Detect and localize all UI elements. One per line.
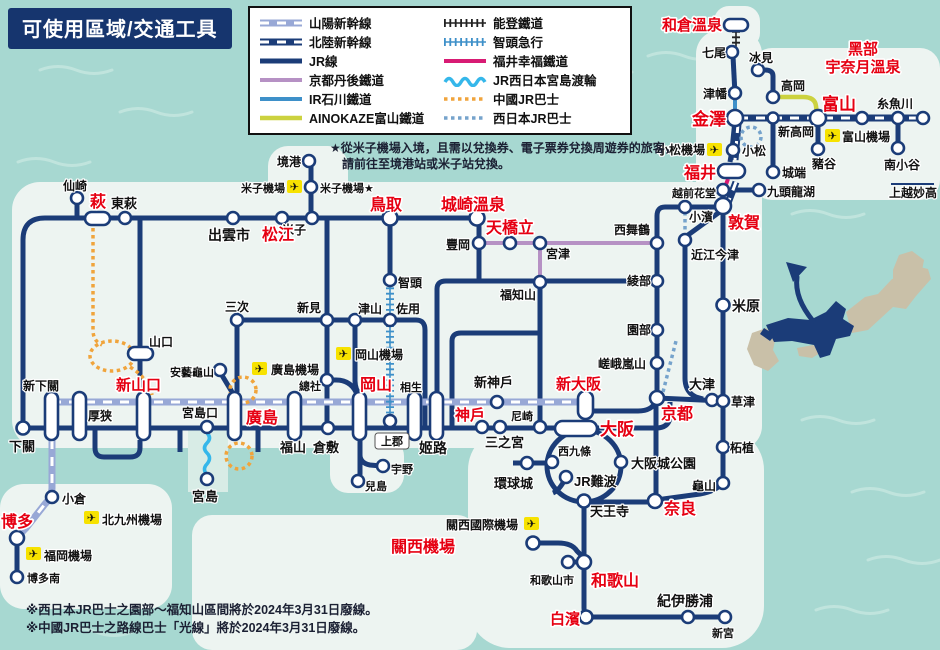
station-園部 xyxy=(651,324,663,336)
label-安藝龜山: 安藝龜山 xyxy=(170,365,214,379)
airport-entry-note: ★從米子機場入境，且需以兌換券、電子票券兌換周遊券的旅客， 請前往至境港站或米子… xyxy=(330,140,690,172)
legend-label: IR石川鐵道 xyxy=(309,89,372,108)
label-新神戶: 新神戶 xyxy=(474,375,513,390)
station-姬路 xyxy=(430,392,443,440)
label-岡山機場: 岡山機場 xyxy=(355,347,403,362)
label-萩: 萩 xyxy=(89,193,106,211)
label-大阪: 大阪 xyxy=(600,419,634,439)
label-上越妙高: 上越妙高 xyxy=(889,185,937,200)
label-九頭龍湖: 九頭龍湖 xyxy=(766,184,815,199)
label-綾部: 綾部 xyxy=(627,273,651,288)
legend-item-buso: 中國JR巴士 xyxy=(442,89,622,108)
label-新大阪: 新大阪 xyxy=(556,375,602,393)
legend-label: 福井幸福鐵道 xyxy=(493,51,568,70)
label-智頭: 智頭 xyxy=(397,275,423,290)
label-龜山: 龜山 xyxy=(692,478,716,493)
station-和倉溫泉 xyxy=(724,19,748,31)
label-姬路: 姬路 xyxy=(419,440,448,456)
label-上郡: 上郡 xyxy=(381,434,403,448)
label-兒島: 兒島 xyxy=(365,479,387,493)
fukuoka-airport-icon: ✈ xyxy=(26,547,41,561)
label-廣島機場: 廣島機場 xyxy=(271,362,319,377)
footnotes: ※西日本JR巴士之園部～福知山區間將於2024年3月31日廢線。※中國JR巴士之… xyxy=(26,601,378,637)
label-奈良: 奈良 xyxy=(663,499,696,518)
label-富山: 富山 xyxy=(822,94,856,114)
station-城端 xyxy=(767,166,779,178)
station-和歌山 xyxy=(577,555,591,569)
label-紀伊勝浦: 紀伊勝浦 xyxy=(657,593,713,609)
label-園部: 園部 xyxy=(627,322,651,337)
label-新下關: 新下關 xyxy=(23,378,59,393)
label-嵯峨嵐山: 嵯峨嵐山 xyxy=(598,356,646,371)
station-龜山 xyxy=(717,477,729,489)
station-出雲市 xyxy=(227,212,239,224)
label-七尾: 七尾 xyxy=(702,46,726,60)
station-下關 xyxy=(17,422,30,435)
label-越前花堂: 越前花堂 xyxy=(671,186,716,200)
station-和歌山市 xyxy=(562,556,574,568)
legend-item-sksh: 北陸新幹線 xyxy=(258,32,438,51)
station-敦賀 xyxy=(715,198,731,214)
station-東萩 xyxy=(119,212,131,224)
yonago-airport-icon: ✈ xyxy=(287,180,302,194)
label-豬谷: 豬谷 xyxy=(811,156,837,171)
label-柘植: 柘植 xyxy=(729,440,754,455)
legend-label: JR線 xyxy=(309,51,337,70)
station-宇野 xyxy=(377,460,389,472)
label-豐岡: 豐岡 xyxy=(446,237,470,252)
kansai-intl-airport-icon: ✈ xyxy=(524,517,539,531)
station-西舞鶴 xyxy=(651,237,663,249)
label-新宮: 新宮 xyxy=(712,626,734,640)
legend-label: 中國JR巴士 xyxy=(493,89,559,108)
label-草津: 草津 xyxy=(731,394,755,409)
station-三之宮 xyxy=(494,421,506,433)
station-七尾 xyxy=(726,46,738,58)
legend-item-noto: 能登鐵道 xyxy=(442,13,622,32)
label-城崎溫泉: 城崎溫泉 xyxy=(441,195,506,214)
station-關西機場 xyxy=(527,537,540,550)
legend-item-aino: AINOKAZE富山鐵道 xyxy=(258,108,438,127)
label-冰見: 冰見 xyxy=(749,50,773,65)
legend-swatch-chizu xyxy=(442,35,488,49)
svg-text:✈: ✈ xyxy=(710,145,719,157)
legend-swatch-busb xyxy=(442,111,488,125)
station-仙崎 xyxy=(71,192,83,204)
label-境港: 境港 xyxy=(277,154,302,169)
label-和歌山: 和歌山 xyxy=(591,571,639,590)
station-小松 xyxy=(727,144,739,156)
label-津山: 津山 xyxy=(358,301,382,316)
label-天王寺: 天王寺 xyxy=(590,504,629,519)
legend-label: AINOKAZE富山鐵道 xyxy=(309,108,424,127)
label-下關: 下關 xyxy=(9,439,35,454)
svg-text:✈: ✈ xyxy=(527,519,536,531)
label-尼崎: 尼崎 xyxy=(511,409,533,423)
station-糸魚川 xyxy=(892,112,904,124)
note-line-1: ★從米子機場入境，且需以兌換券、電子票券兌換周遊券的旅客， xyxy=(330,140,690,156)
label-廣島: 廣島 xyxy=(246,408,278,427)
station-尼崎 xyxy=(534,421,546,433)
station-綾部 xyxy=(651,275,663,287)
station-新宮 xyxy=(719,611,731,623)
label-福岡機場: 福岡機場 xyxy=(43,548,92,563)
station-總社 xyxy=(321,374,333,386)
legend-item-chizu: 智頭急行 xyxy=(442,32,622,51)
station-上郡 xyxy=(384,415,396,427)
legend-swatch-ferry xyxy=(442,73,488,87)
line-kojima-branch xyxy=(358,440,360,479)
label-博多南: 博多南 xyxy=(27,571,60,585)
station-福知山 xyxy=(534,276,546,288)
label-神戶: 神戶 xyxy=(455,406,485,424)
kitakyushu-airport-icon: ✈ xyxy=(84,511,99,525)
station-天王寺 xyxy=(578,495,591,508)
label-鳥取: 鳥取 xyxy=(370,195,402,214)
station-福山 xyxy=(288,392,301,440)
komatsu-airport-icon: ✈ xyxy=(707,143,722,157)
station-豬谷 xyxy=(812,143,824,155)
label-出雲市: 出雲市 xyxy=(208,227,250,243)
label-米子機場★: 米子機場★ xyxy=(319,181,374,195)
label-三之宮: 三之宮 xyxy=(485,435,524,450)
station-倉敷 xyxy=(322,422,334,434)
label-JR難波: JR難波 xyxy=(574,474,618,489)
station-黑部宇奈月溫泉 xyxy=(856,112,868,124)
route-map-stage: 上郡✈✈✈✈✈✈✈✈和倉溫泉七尾冰見津幡高岡新高岡金澤富山黑部宇奈月溫泉糸魚川南… xyxy=(0,0,940,650)
label-高岡: 高岡 xyxy=(781,78,805,93)
station-米原 xyxy=(717,299,730,312)
station-金澤 xyxy=(727,110,743,126)
label-和歌山市: 和歌山市 xyxy=(530,573,574,587)
toyama-airport-icon: ✈ xyxy=(825,129,840,143)
legend-label: 北陸新幹線 xyxy=(309,32,372,51)
label-關西機場: 關西機場 xyxy=(391,537,455,556)
station-米子 xyxy=(306,212,318,224)
station-新見 xyxy=(321,314,333,326)
label-岡山: 岡山 xyxy=(360,376,392,394)
station-新山口 xyxy=(137,392,150,440)
station-宮津 xyxy=(534,237,546,249)
label-佐用: 佐用 xyxy=(395,301,420,316)
station-相生 xyxy=(408,392,421,440)
legend-item-tango: 京都丹後鐵道 xyxy=(258,70,438,89)
label-新見: 新見 xyxy=(297,300,321,315)
okayama-airport-icon: ✈ xyxy=(336,347,351,361)
label-城端: 城端 xyxy=(782,165,806,180)
legend-label: 京都丹後鐵道 xyxy=(309,70,384,89)
label-仙崎: 仙崎 xyxy=(63,178,87,193)
legend-swatch-sksh xyxy=(258,35,304,49)
label-小濱: 小濱 xyxy=(689,209,713,224)
station-米子機場站 xyxy=(305,181,317,193)
label-新山口: 新山口 xyxy=(116,376,161,394)
station-越前花堂 xyxy=(717,184,729,196)
label-北九州機場: 北九州機場 xyxy=(102,512,162,527)
label-相生: 相生 xyxy=(400,380,422,394)
legend-label: 西日本JR巴士 xyxy=(493,108,571,127)
station-新神戶 xyxy=(491,396,503,408)
label-米子機場: 米子機場 xyxy=(240,181,285,195)
label-津幡: 津幡 xyxy=(703,86,728,101)
station-小倉 xyxy=(46,491,58,503)
station-新大阪 xyxy=(578,391,593,419)
label-福知山: 福知山 xyxy=(499,287,536,302)
footnote: ※西日本JR巴士之園部～福知山區間將於2024年3月31日廢線。 xyxy=(26,601,378,619)
footnote: ※中國JR巴士之路線巴士「光線」將於2024年3月31日廢線。 xyxy=(26,619,378,637)
station-博多南 xyxy=(11,571,23,583)
label-關西國際機場: 關西國際機場 xyxy=(446,517,518,532)
label-米原: 米原 xyxy=(732,298,760,314)
legend-column-right: 能登鐵道智頭急行福井幸福鐵道JR西日本宮島渡輪中國JR巴士西日本JR巴士 xyxy=(442,13,622,127)
legend-label: 智頭急行 xyxy=(493,32,543,51)
svg-text:✈: ✈ xyxy=(339,349,348,361)
legend-swatch-tango xyxy=(258,73,304,87)
label-博多: 博多 xyxy=(1,512,33,531)
legend-swatch-ir xyxy=(258,92,304,106)
station-三次 xyxy=(231,314,243,326)
station-西九條 xyxy=(546,456,558,468)
label-金澤: 金澤 xyxy=(691,109,726,129)
station-南小谷 xyxy=(892,142,904,154)
label-富山機場: 富山機場 xyxy=(842,129,890,144)
legend-item-ir: IR石川鐵道 xyxy=(258,89,438,108)
station-廣島 xyxy=(228,392,241,440)
station-近江今津 xyxy=(679,234,691,246)
legend-column-left: 山陽新幹線北陸新幹線JR線京都丹後鐵道IR石川鐵道AINOKAZE富山鐵道 xyxy=(258,13,438,127)
svg-text:✈: ✈ xyxy=(290,182,299,194)
note-line-2: 請前往至境港站或米子站兌換。 xyxy=(330,156,690,172)
station-九頭龍湖 xyxy=(753,184,765,196)
station-境港 xyxy=(303,155,315,167)
legend-label: 能登鐵道 xyxy=(493,13,543,32)
legend-swatch-skss xyxy=(258,16,304,30)
svg-text:✈: ✈ xyxy=(255,364,264,376)
station-大阪城公園 xyxy=(615,456,627,468)
label-宇奈月溫泉: 宇奈月溫泉 xyxy=(825,58,901,76)
station-安藝龜山 xyxy=(214,364,226,376)
svg-text:✈: ✈ xyxy=(29,549,38,561)
station-宮島 xyxy=(201,473,213,485)
label-東萩: 東萩 xyxy=(111,196,137,211)
label-大津: 大津 xyxy=(689,377,715,392)
station-兒島 xyxy=(352,475,364,487)
label-西舞鶴: 西舞鶴 xyxy=(614,222,650,237)
label-白濱: 白濱 xyxy=(550,610,580,628)
station-福井 xyxy=(718,164,745,178)
station-新下關 xyxy=(45,392,58,440)
station-津幡 xyxy=(729,87,741,99)
station-豐岡 xyxy=(473,237,485,249)
legend-swatch-noto xyxy=(442,16,488,30)
station-上越妙高 xyxy=(917,112,929,124)
legend-item-busb: 西日本JR巴士 xyxy=(442,108,622,127)
label-和倉溫泉: 和倉溫泉 xyxy=(662,16,723,34)
station-宮島口 xyxy=(201,421,213,433)
label-山口: 山口 xyxy=(149,334,173,349)
label-南小谷: 南小谷 xyxy=(884,157,921,172)
label-小松: 小松 xyxy=(742,143,766,158)
label-近江今津: 近江今津 xyxy=(691,247,739,262)
station-嵯峨嵐山 xyxy=(651,357,663,369)
legend-item-jr: JR線 xyxy=(258,51,438,70)
label-宮島口: 宮島口 xyxy=(182,405,218,420)
label-倉敷: 倉敷 xyxy=(312,440,340,455)
label-敦賀: 敦賀 xyxy=(728,213,760,232)
label-三次: 三次 xyxy=(225,299,249,314)
station-岡山 xyxy=(353,392,366,440)
legend-swatch-aino xyxy=(258,111,304,125)
station-草津 xyxy=(717,395,729,407)
map-title: 可使用區域/交通工具 xyxy=(8,8,232,49)
label-大阪城公園: 大阪城公園 xyxy=(631,456,696,471)
station-環球城 xyxy=(521,457,533,469)
legend-item-happy: 福井幸福鐵道 xyxy=(442,51,622,70)
station-高岡 xyxy=(767,91,779,103)
label-宇野: 宇野 xyxy=(391,462,413,476)
label-總社: 總社 xyxy=(299,379,321,393)
label-新高岡: 新高岡 xyxy=(778,124,814,139)
station-紀伊勝浦 xyxy=(682,611,694,623)
station-天橋立 xyxy=(504,237,516,249)
legend-label: JR西日本宮島渡輪 xyxy=(493,70,596,89)
label-環球城: 環球城 xyxy=(494,476,533,491)
legend-box: 山陽新幹線北陸新幹線JR線京都丹後鐵道IR石川鐵道AINOKAZE富山鐵道 能登… xyxy=(248,6,632,135)
station-佐用 xyxy=(384,314,396,326)
legend-item-skss: 山陽新幹線 xyxy=(258,13,438,32)
station-厚狭 xyxy=(73,392,86,440)
station-智頭 xyxy=(384,274,396,286)
station-冰見 xyxy=(752,64,764,76)
station-萩 xyxy=(85,212,110,225)
legend-item-ferry: JR西日本宮島渡輪 xyxy=(442,70,622,89)
station-柘植 xyxy=(717,441,729,453)
station-大阪 xyxy=(555,421,597,436)
label-福山: 福山 xyxy=(279,440,306,455)
station-京都 xyxy=(650,391,664,405)
station-奈良 xyxy=(648,494,662,508)
legend-swatch-happy xyxy=(442,54,488,68)
label-西九條: 西九條 xyxy=(558,444,592,458)
station-新高岡 xyxy=(768,113,779,124)
label-天橋立: 天橋立 xyxy=(486,218,534,237)
label-松江: 松江 xyxy=(262,225,294,244)
label-京都: 京都 xyxy=(661,404,693,423)
station-博多 xyxy=(10,531,24,545)
label-厚狭: 厚狭 xyxy=(88,408,112,423)
station-JR難波 xyxy=(560,471,572,483)
svg-text:✈: ✈ xyxy=(87,513,96,525)
legend-label: 山陽新幹線 xyxy=(309,13,372,32)
hiroshima-airport-icon: ✈ xyxy=(252,362,267,376)
legend-swatch-buso xyxy=(442,92,488,106)
svg-text:✈: ✈ xyxy=(828,131,837,143)
label-宮津: 宮津 xyxy=(546,246,570,261)
label-小倉: 小倉 xyxy=(62,491,87,506)
label-糸魚川: 糸魚川 xyxy=(877,96,913,111)
label-宮島: 宮島 xyxy=(192,489,218,504)
station-白濱 xyxy=(580,611,593,624)
label-黑部: 黑部 xyxy=(848,40,878,58)
legend-swatch-jr xyxy=(258,54,304,68)
